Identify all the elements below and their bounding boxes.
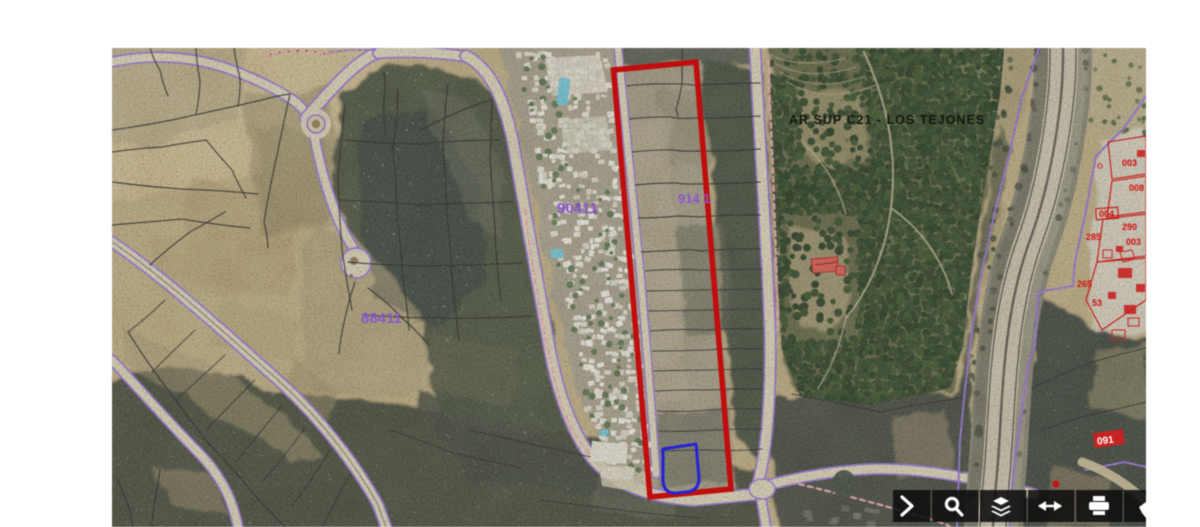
svg-text:004: 004 xyxy=(1099,209,1114,219)
svg-text:90411: 90411 xyxy=(557,200,598,217)
svg-text:008: 008 xyxy=(1129,183,1144,193)
svg-text:914 1: 914 1 xyxy=(678,191,711,206)
svg-text:285: 285 xyxy=(1086,232,1101,242)
svg-text:265: 265 xyxy=(1077,279,1092,289)
svg-text:003: 003 xyxy=(1122,158,1137,168)
svg-text:290: 290 xyxy=(1122,222,1137,232)
svg-text:53: 53 xyxy=(1092,298,1102,308)
svg-text:AR SUP C21 - LOS TEJONES: AR SUP C21 - LOS TEJONES xyxy=(789,113,985,127)
svg-text:88411: 88411 xyxy=(361,310,402,327)
svg-text:003: 003 xyxy=(1126,237,1141,247)
